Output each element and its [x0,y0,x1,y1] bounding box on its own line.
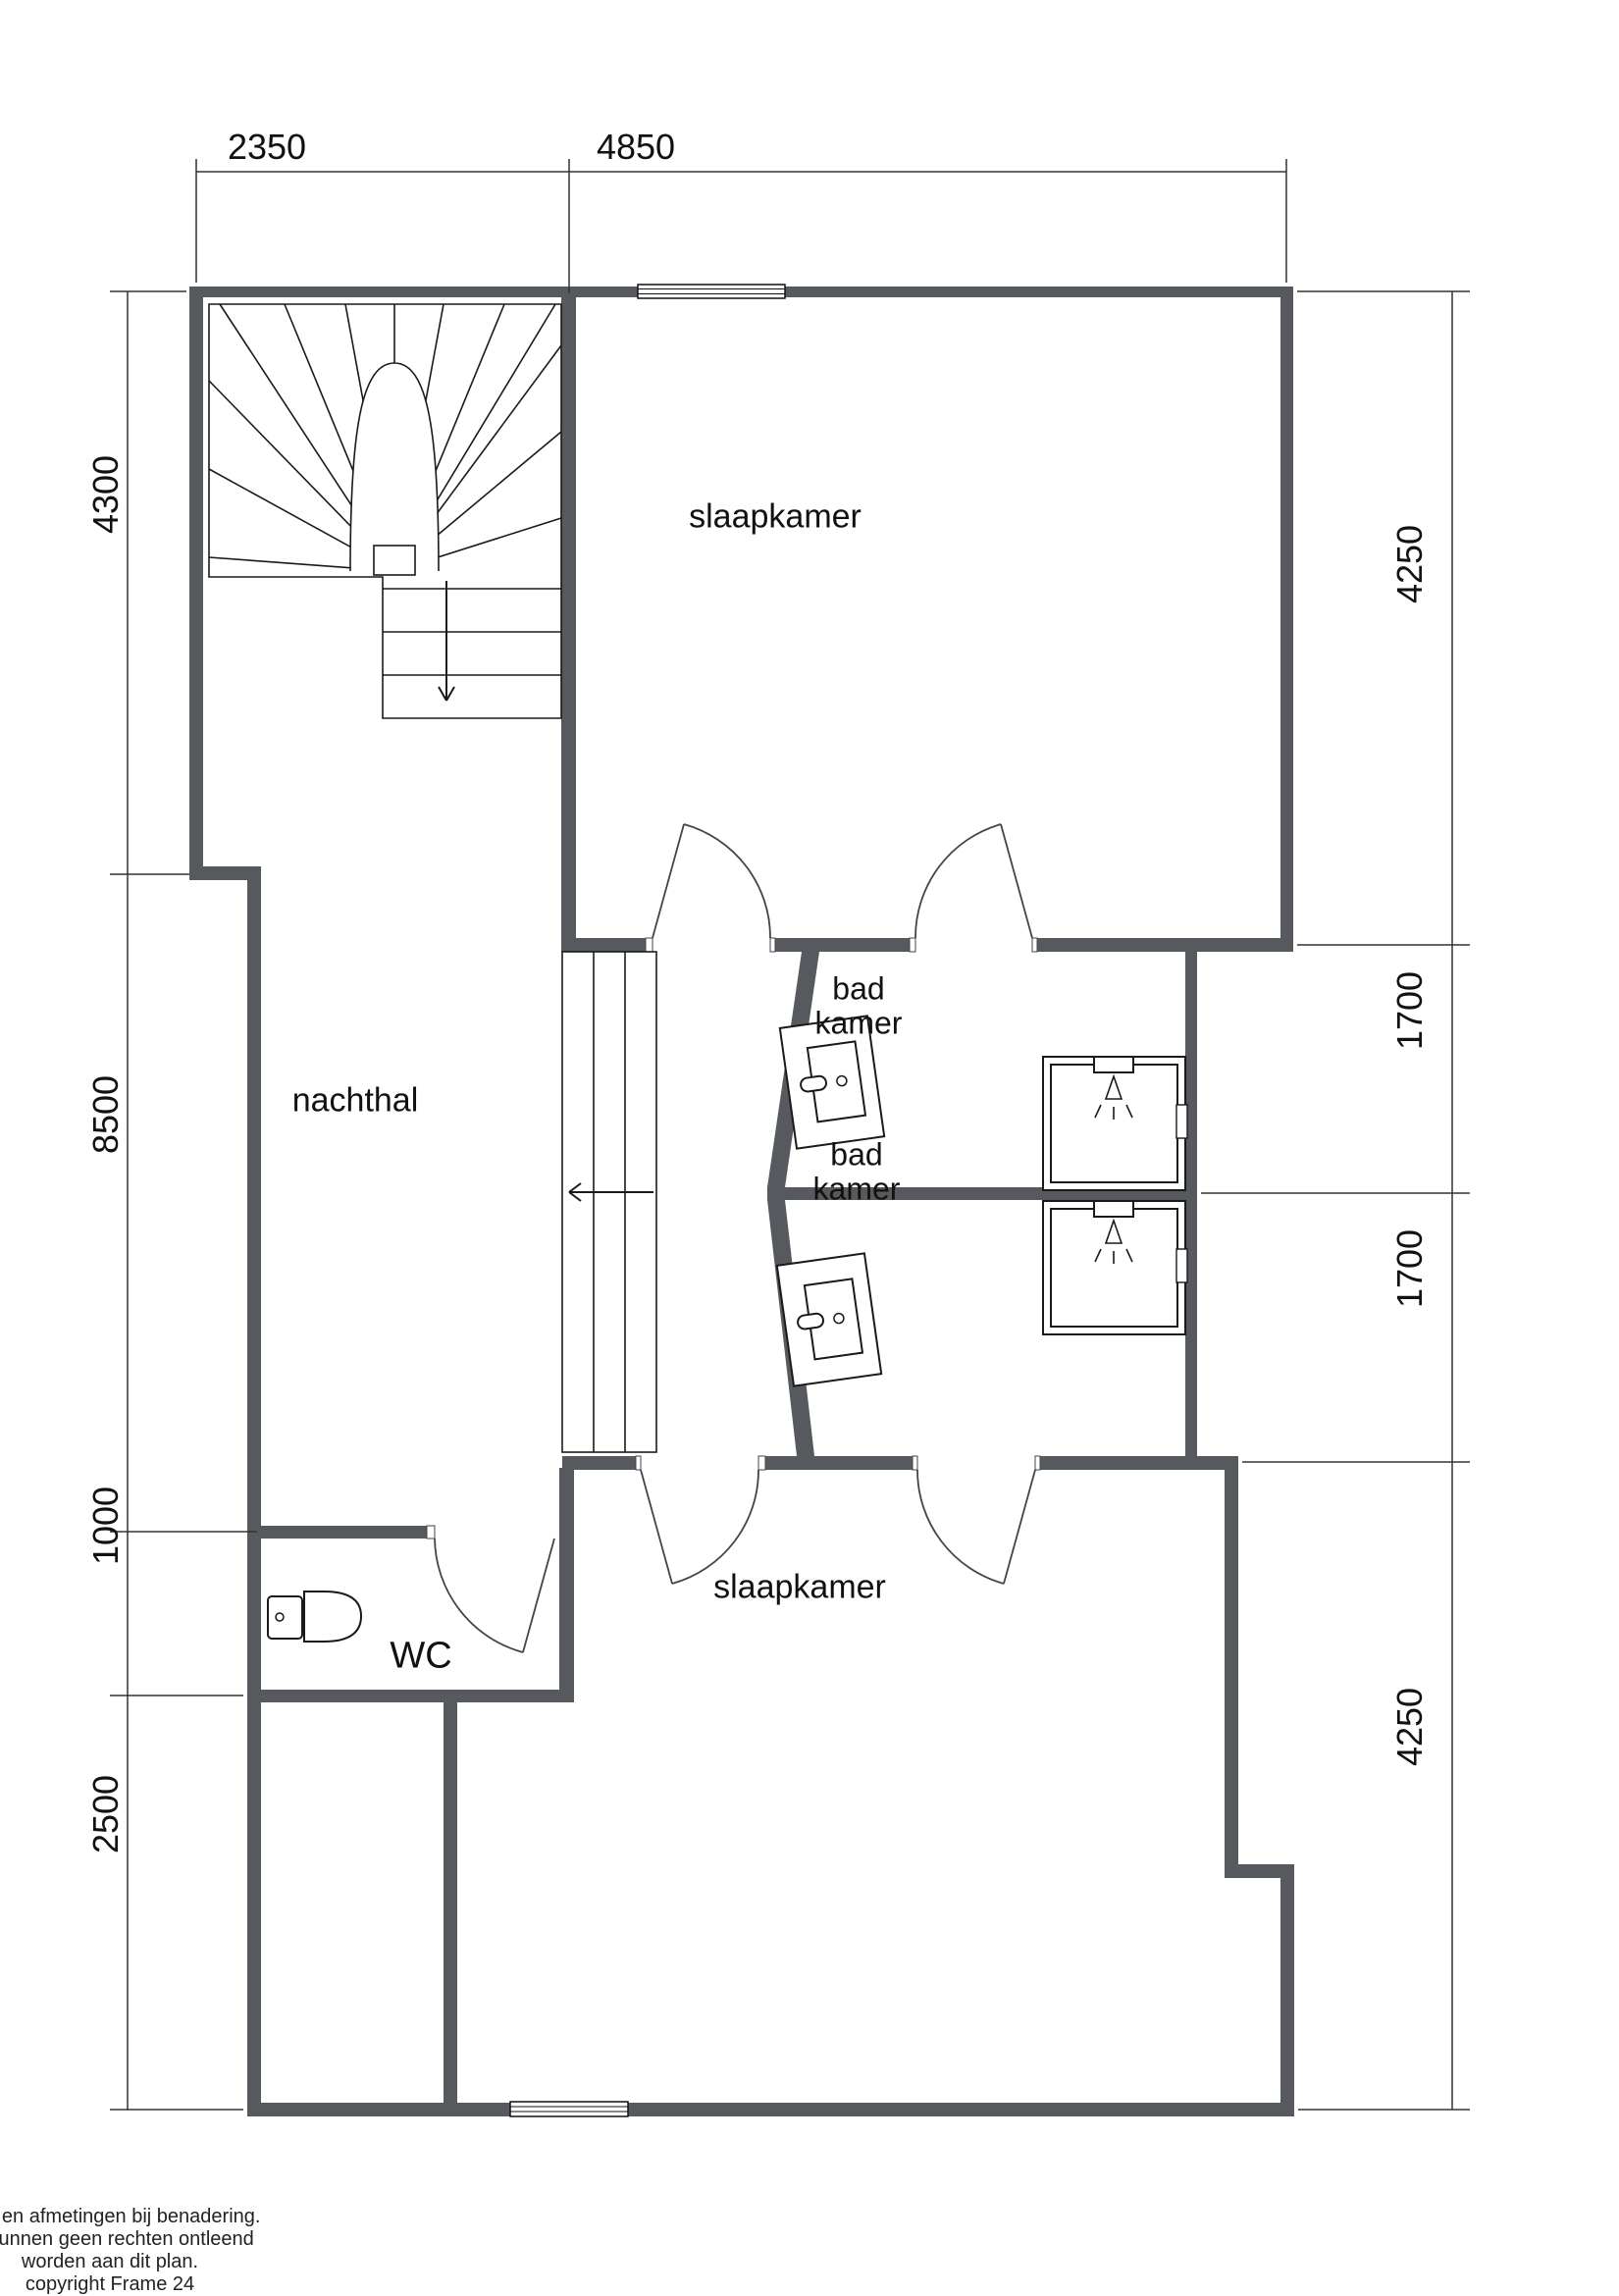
shower-icon-bathroom2 [1043,1201,1187,1334]
room-label-bathroom1-line2: kamer [815,1006,903,1042]
wall-left-upper [189,287,203,880]
wall-bottom-right [628,2103,1294,2116]
wall-top-left [189,287,638,297]
closet [562,952,656,1452]
room-label-bathroom2-line2: kamer [813,1172,901,1208]
wall-left-lower [247,880,261,2116]
door-bedroom-top-right [915,824,1032,938]
window-top [638,285,785,298]
floor-plan-page: slaapkamer slaapkamer nachthal bad kamer… [0,0,1619,2296]
wall-top-right [785,287,1293,297]
footer-disclaimer-line2: er kunnen geen rechten ontleend [0,2228,254,2251]
wall-right-mid [1225,1470,1238,1864]
room-label-hallway: nachthal [292,1082,419,1121]
dim-label-left-2500: 2500 [85,1775,127,1853]
door-jambs [427,938,1040,1539]
wall-below-wc [444,1702,457,2103]
room-label-bedroom-top: slaapkamer [689,498,862,537]
wall-wc-top [261,1526,427,1539]
wall-right-low [1280,1878,1294,2103]
dim-label-left-8500: 8500 [85,1075,127,1154]
footer-disclaimer-line1: plan en afmetingen bij benadering. [0,2206,260,2228]
footer-copyright: copyright Frame 24 [26,2273,194,2296]
wall-bathroom-right [1185,952,1197,1470]
wall-bedroom-bottom-a [561,938,646,952]
dim-line-top [196,159,1286,293]
floor-plan-drawing [0,0,1619,2296]
stairs [209,304,561,718]
room-label-bathroom2-line1: bad [830,1137,882,1174]
wall-bedroom-bottom-b [775,938,910,952]
wall-wc-bottom [247,1690,574,1702]
shower-icon-bathroom1 [1043,1057,1187,1190]
wall-bslaap-top-c [1040,1456,1238,1470]
wall-right-notch [1225,1864,1294,1878]
sink-icon-bathroom2 [777,1253,881,1385]
wall-right-top [1280,287,1293,952]
dim-label-right-4250-bottom: 4250 [1389,1688,1431,1766]
footer-disclaimer-line3: worden aan dit plan. [22,2251,198,2273]
wall-bslaap-top-b [765,1456,913,1470]
wall-left-step [189,866,261,880]
window-bottom [510,2102,628,2116]
wall-bottom-left [247,2103,510,2116]
wall-bslaap-top-a [562,1456,636,1470]
dim-label-right-1700-a: 1700 [1389,971,1431,1050]
dim-label-left-1000: 1000 [85,1487,127,1565]
dim-label-right-1700-b: 1700 [1389,1229,1431,1308]
dim-label-right-4250-top: 4250 [1389,525,1431,603]
wall-stair-divider [561,297,576,952]
dim-label-left-4300: 4300 [85,455,127,534]
toilet-icon [268,1592,361,1642]
room-label-bathroom1-line1: bad [832,971,884,1008]
door-bedroom-top-left [653,824,770,938]
room-label-wc: WC [390,1636,451,1678]
stairs-newel [374,546,415,575]
doors [435,824,1035,1652]
dim-label-top-4850: 4850 [597,127,675,168]
door-bedroom-bottom-left [641,1470,758,1584]
dim-label-top-2350: 2350 [228,127,306,168]
wall-bedroom-bottom-c [1037,938,1293,952]
wall-wc-right [559,1468,574,1702]
door-bedroom-bottom-right [917,1470,1035,1584]
door-wc [435,1539,554,1652]
room-label-bedroom-bottom: slaapkamer [713,1569,886,1607]
